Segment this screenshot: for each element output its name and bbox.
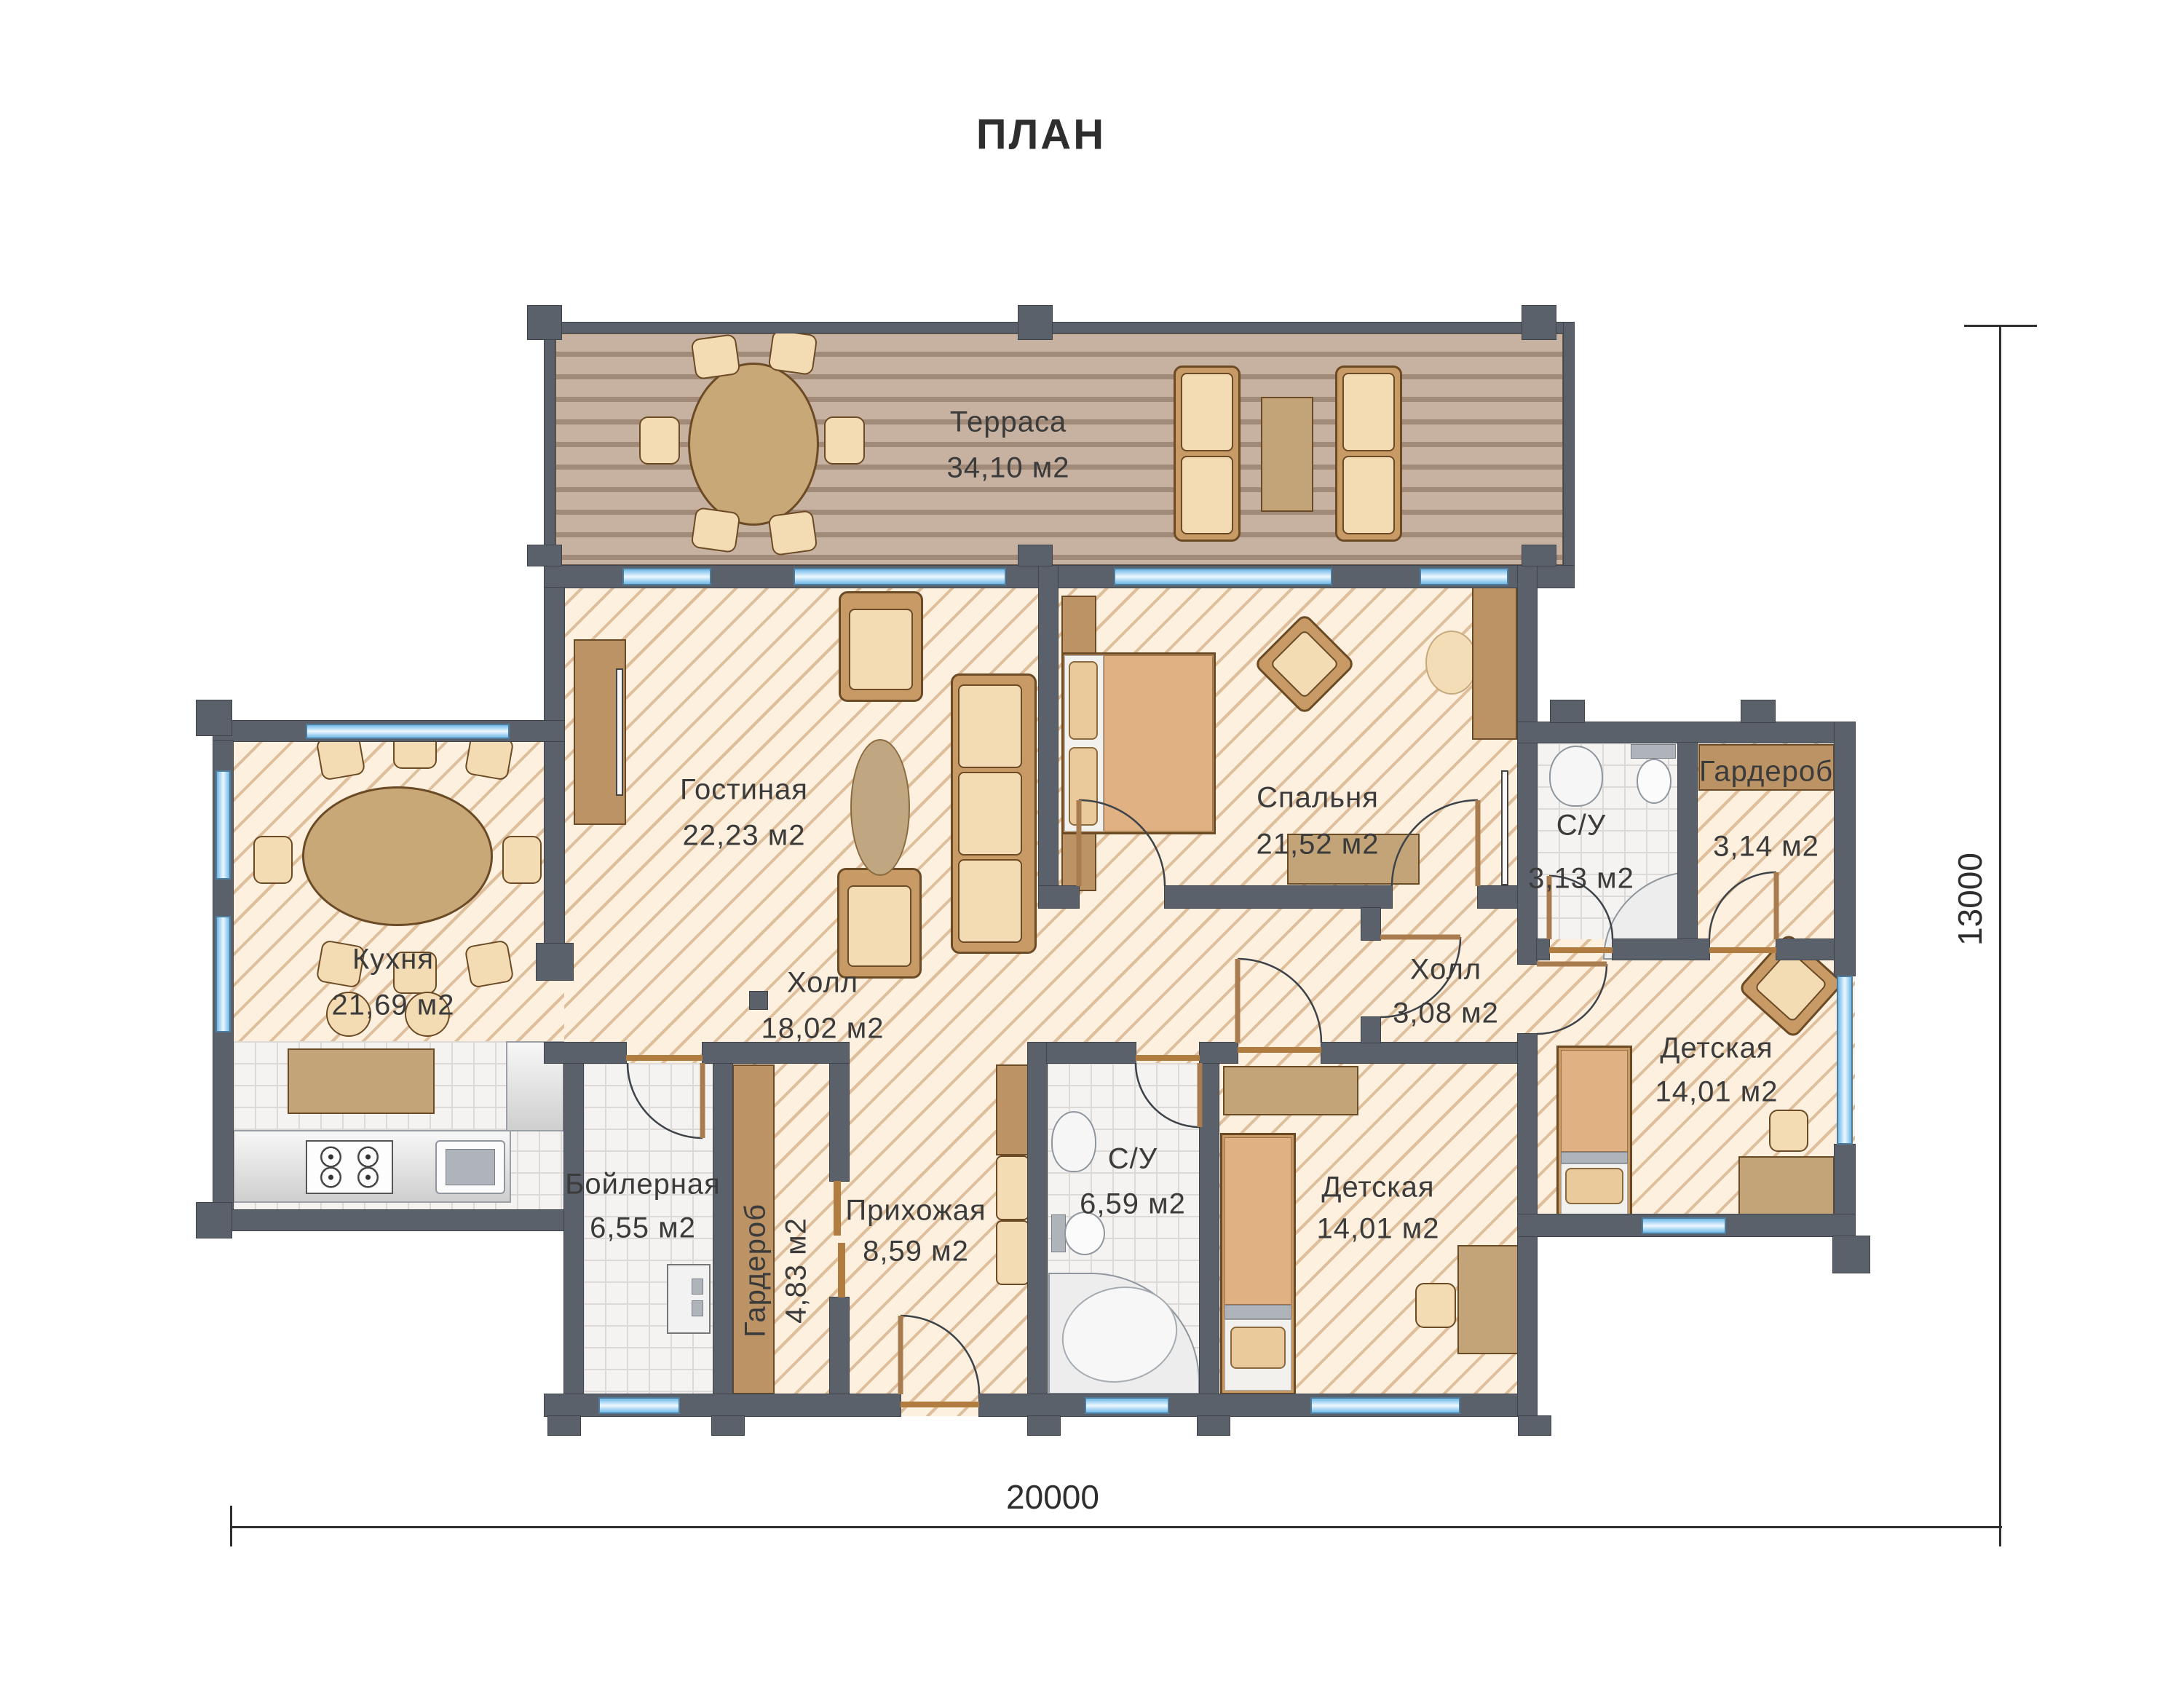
label-entry-name: Прихожая — [845, 1195, 986, 1228]
door-arc — [1392, 800, 1478, 886]
door-arc — [1238, 959, 1321, 1043]
label-kitchen-name: Кухня — [352, 944, 434, 976]
label-kids-right-area: 14,01 м2 — [1655, 1076, 1779, 1109]
label-bath-big-area: 6,59 м2 — [1080, 1188, 1186, 1221]
label-entry-area: 8,59 м2 — [863, 1236, 969, 1268]
floor-plan-page: ПЛАН 20000 13000 Терраса34,10 м2Гостиная… — [0, 0, 2184, 1703]
label-bath-small-area: 3,13 м2 — [1528, 863, 1634, 896]
label-boiler-area: 6,55 м2 — [590, 1212, 696, 1245]
label-wardrobe-vert-area: 4,83 м2 — [780, 1217, 813, 1324]
label-kids-bottom-name: Детская — [1321, 1171, 1434, 1204]
label-terrace-area: 34,10 м2 — [947, 452, 1070, 485]
label-kids-right-name: Детская — [1660, 1032, 1773, 1065]
label-bedroom-area: 21,52 м2 — [1257, 829, 1380, 861]
label-hall-main-name: Холл — [787, 967, 858, 1000]
label-bath-big-name: С/У — [1108, 1143, 1158, 1176]
label-kids-bottom-area: 14,01 м2 — [1317, 1213, 1440, 1246]
dimension-width-label: 20000 — [1006, 1477, 1099, 1517]
door-swing-arcs — [0, 0, 2184, 1703]
label-wardrobe-small-area: 3,14 м2 — [1713, 831, 1819, 864]
dimension-height-label: 13000 — [1950, 853, 1990, 946]
label-terrace-name: Терраса — [950, 406, 1067, 439]
door-arc — [1079, 800, 1165, 886]
door-arc — [1709, 872, 1776, 939]
label-hall-main-area: 18,02 м2 — [761, 1013, 885, 1046]
dimension-tick — [1964, 325, 2037, 327]
door-arc — [901, 1316, 979, 1394]
door-arc — [628, 1063, 703, 1138]
label-wardrobe-small-name: Гардероб — [1699, 756, 1833, 789]
label-wardrobe-vert-name: Гардероб — [740, 1204, 772, 1337]
label-living-name: Гостиная — [680, 774, 808, 807]
label-boiler-name: Бойлерная — [565, 1169, 721, 1201]
plan-title: ПЛАН — [976, 111, 1106, 159]
label-bedroom-name: Спальня — [1257, 782, 1379, 815]
label-hall-small-area: 3,08 м2 — [1393, 997, 1499, 1030]
label-bath-small-name: С/У — [1556, 810, 1606, 842]
label-hall-small-name: Холл — [1410, 954, 1481, 987]
door-arc — [1136, 1063, 1200, 1127]
dimension-line-right — [1999, 326, 2001, 1528]
label-kitchen-area: 21,69 м2 — [332, 989, 455, 1022]
door-arc — [1537, 964, 1607, 1034]
label-living-area: 22,23 м2 — [683, 820, 806, 853]
dimension-line-bottom — [232, 1526, 2002, 1528]
dimension-tick — [230, 1506, 232, 1546]
